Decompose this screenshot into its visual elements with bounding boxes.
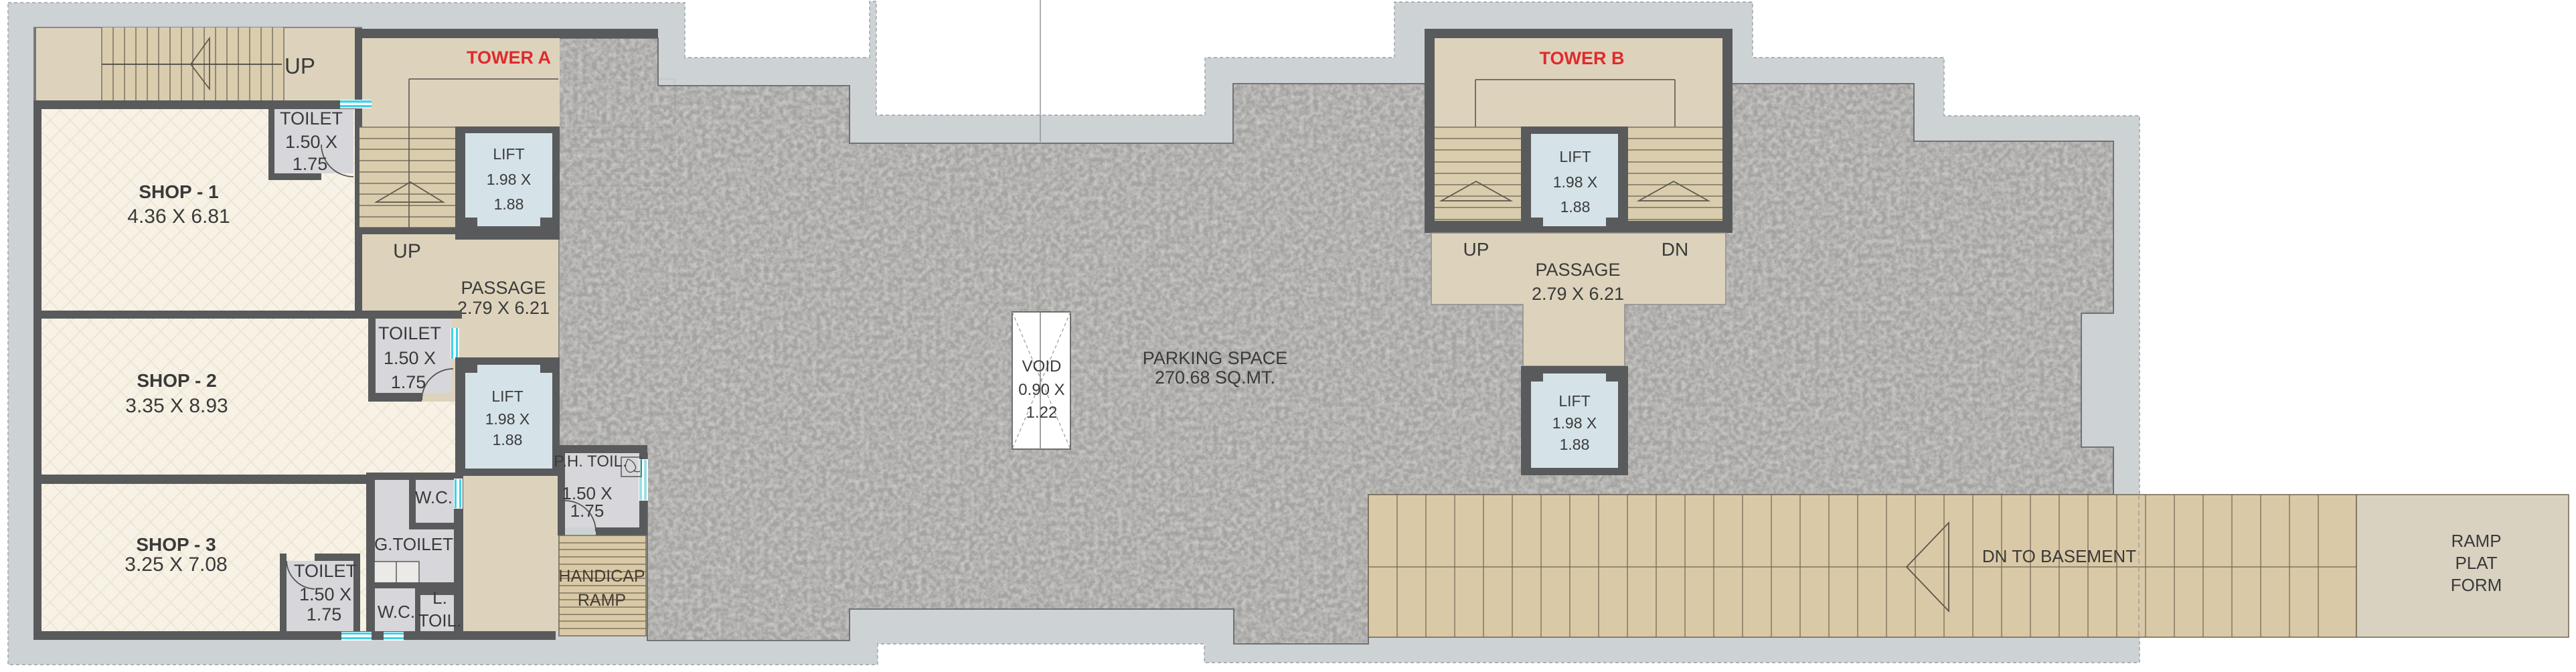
svg-text:TOIL.: TOIL. (418, 610, 462, 631)
svg-text:FORM: FORM (2451, 575, 2502, 595)
svg-text:TOILET: TOILET (378, 323, 441, 343)
svg-text:270.68 SQ.MT.: 270.68 SQ.MT. (1155, 367, 1275, 388)
svg-text:L.: L. (432, 588, 447, 608)
svg-text:SHOP - 3: SHOP - 3 (136, 534, 216, 555)
svg-text:1.88: 1.88 (1560, 436, 1590, 453)
svg-text:HANDICAP: HANDICAP (558, 567, 645, 586)
svg-text:TOWER B: TOWER B (1540, 48, 1625, 68)
svg-text:LIFT: LIFT (491, 388, 523, 405)
svg-text:PROPTIGER.com: PROPTIGER.com (1175, 495, 1256, 507)
svg-text:1.50 X: 1.50 X (384, 348, 436, 368)
svg-text:W.C.: W.C. (378, 602, 415, 622)
svg-text:PLAT: PLAT (2455, 553, 2497, 573)
svg-text:G.TOILET: G.TOILET (374, 534, 453, 554)
svg-text:UP: UP (285, 54, 315, 78)
svg-text:1.75: 1.75 (570, 501, 605, 521)
svg-text:TOWER A: TOWER A (467, 48, 551, 68)
svg-text:SHOP - 2: SHOP - 2 (137, 370, 216, 391)
svg-text:1.50 X: 1.50 X (285, 132, 337, 152)
svg-text:UP: UP (393, 240, 421, 262)
svg-text:1.22: 1.22 (1026, 404, 1058, 422)
svg-text:VOID: VOID (1022, 357, 1062, 375)
svg-text:W.C.: W.C. (415, 487, 453, 507)
svg-text:0.90 X: 0.90 X (1018, 381, 1064, 399)
svg-text:2.79 X 6.21: 2.79 X 6.21 (1532, 284, 1624, 304)
svg-text:PARKING SPACE: PARKING SPACE (1143, 348, 1288, 368)
svg-text:3.25 X 7.08: 3.25 X 7.08 (125, 554, 227, 576)
svg-text:PROPTIGER.com: PROPTIGER.com (1175, 163, 1256, 174)
svg-text:DN TO BASEMENT: DN TO BASEMENT (1982, 546, 2136, 566)
svg-text:LIFT: LIFT (493, 145, 524, 163)
svg-text:LIFT: LIFT (1558, 392, 1590, 410)
svg-text:1.75: 1.75 (293, 154, 328, 174)
svg-text:1.98 X: 1.98 X (485, 410, 530, 428)
svg-text:1.88: 1.88 (1560, 198, 1591, 216)
svg-text:4.36 X 6.81: 4.36 X 6.81 (127, 205, 230, 228)
svg-text:1.98 X: 1.98 X (1552, 414, 1597, 432)
svg-text:1.75: 1.75 (307, 604, 342, 624)
svg-text:1.88: 1.88 (494, 195, 524, 213)
svg-text:1.98 X: 1.98 X (1553, 173, 1598, 191)
svg-text:2.79 X 6.21: 2.79 X 6.21 (457, 298, 550, 318)
svg-text:1.50 X: 1.50 X (299, 584, 351, 604)
svg-text:1.88: 1.88 (493, 431, 523, 448)
svg-text:1.98 X: 1.98 X (487, 171, 532, 188)
svg-text:3.35 X 8.93: 3.35 X 8.93 (125, 395, 228, 417)
svg-text:RAMP: RAMP (2451, 531, 2501, 551)
svg-text:1.75: 1.75 (391, 372, 426, 392)
svg-text:SHOP - 1: SHOP - 1 (139, 181, 218, 202)
svg-text:PASSAGE: PASSAGE (461, 278, 546, 298)
svg-text:PASSAGE: PASSAGE (1535, 260, 1620, 280)
svg-text:TOILET: TOILET (280, 108, 343, 129)
svg-text:P.H. TOIL.: P.H. TOIL. (554, 452, 627, 471)
svg-text:TOILET: TOILET (294, 561, 357, 581)
svg-text:DN: DN (1662, 239, 1688, 260)
svg-text:RAMP: RAMP (578, 591, 626, 610)
svg-text:LIFT: LIFT (1559, 148, 1591, 165)
svg-text:UP: UP (1463, 239, 1490, 260)
